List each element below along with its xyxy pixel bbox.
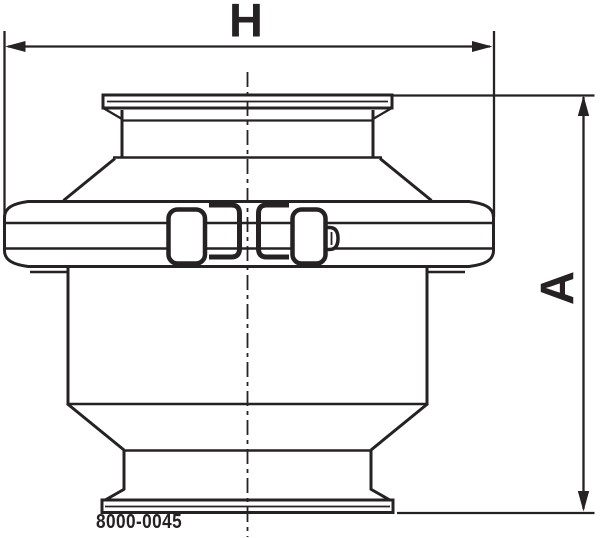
part-number-label: 8000-0045 xyxy=(96,512,182,532)
bolt-lug-right xyxy=(293,210,326,264)
a-arrow-down xyxy=(578,491,589,512)
bolt-lug-left xyxy=(169,210,206,264)
clamp-band xyxy=(5,202,494,267)
dimension-label-a: A xyxy=(534,271,581,305)
technical-drawing-canvas: H A 8000-0045 xyxy=(0,0,600,538)
dimension-label-h: H xyxy=(229,0,263,44)
h-arrow-right xyxy=(472,41,493,52)
valve-line-art xyxy=(0,0,600,538)
union-clamp xyxy=(5,202,494,267)
a-arrow-up xyxy=(578,96,589,117)
h-arrow-left xyxy=(5,41,26,52)
